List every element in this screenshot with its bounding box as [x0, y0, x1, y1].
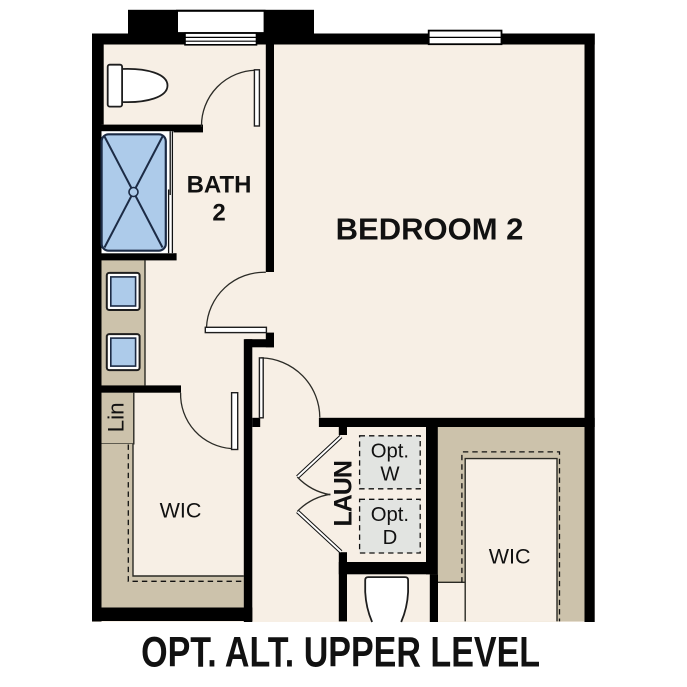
svg-text:BEDROOM 2: BEDROOM 2: [336, 211, 524, 246]
svg-text:Opt.: Opt.: [371, 504, 409, 526]
svg-text:BATH: BATH: [187, 171, 252, 198]
svg-text:2: 2: [212, 199, 225, 226]
svg-text:Opt.: Opt.: [371, 440, 409, 462]
svg-text:WIC: WIC: [489, 544, 531, 568]
svg-text:W: W: [380, 463, 400, 485]
svg-text:WIC: WIC: [160, 499, 202, 523]
svg-text:OPT. ALT. UPPER LEVEL: OPT. ALT. UPPER LEVEL: [141, 629, 540, 677]
svg-text:D: D: [383, 527, 398, 549]
svg-text:Lin: Lin: [104, 402, 129, 432]
svg-text:LAUN: LAUN: [330, 461, 358, 526]
